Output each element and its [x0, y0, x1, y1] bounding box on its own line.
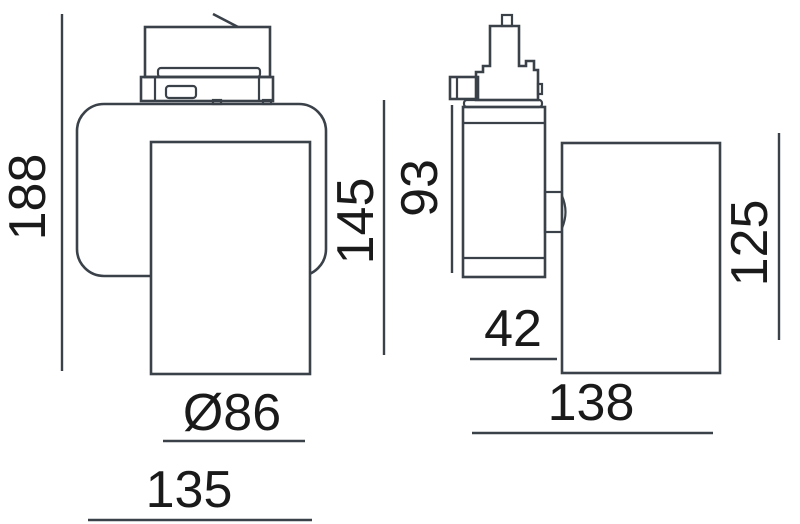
dim-label-body-width: 135 — [146, 461, 233, 519]
side-lamp-head — [562, 143, 720, 373]
front-adapter-lever-line — [213, 14, 238, 27]
dim-label-head-height: 125 — [721, 200, 779, 287]
side-adapter-nub — [538, 84, 542, 94]
dim-label-body-height: 145 — [327, 178, 385, 265]
dim-label-arm-height: 93 — [391, 159, 449, 217]
side-adapter-latch — [450, 77, 478, 99]
side-arm-box — [463, 107, 545, 277]
front-adapter-plate — [158, 68, 260, 77]
side-adapter-body — [476, 26, 538, 100]
front-lamp-head — [151, 142, 310, 374]
front-adapter-switch — [166, 86, 196, 98]
front-view — [77, 14, 326, 374]
dim-label-overall-height: 188 — [0, 154, 57, 241]
dim-label-head-length: 138 — [548, 374, 635, 432]
front-adapter-base — [141, 77, 273, 101]
track-light-drawing: 188 145 Ø86 135 93 42 125 138 — [0, 0, 800, 524]
dim-label-arm-depth: 42 — [484, 300, 542, 358]
side-adapter-pin — [502, 15, 512, 26]
dim-label-head-diameter: Ø86 — [183, 384, 281, 442]
side-pivot-block — [545, 192, 562, 232]
front-adapter-housing — [145, 27, 270, 77]
dimension-drawing-canvas: 188 145 Ø86 135 93 42 125 138 — [0, 0, 800, 524]
